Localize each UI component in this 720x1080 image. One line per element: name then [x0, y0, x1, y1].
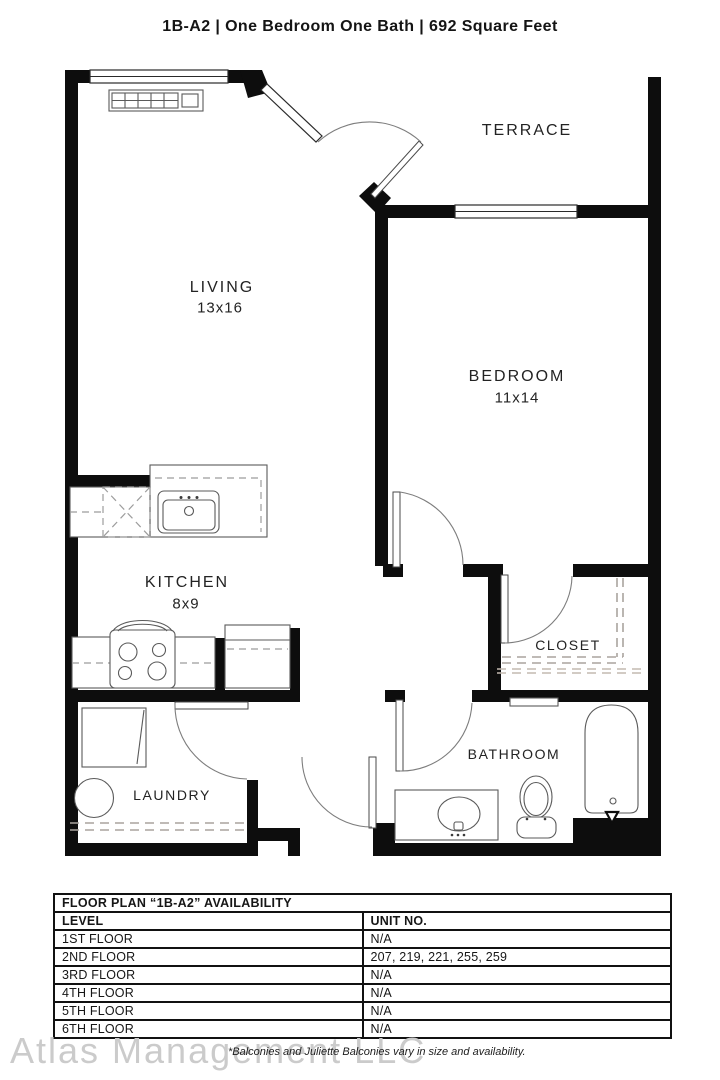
toilet — [517, 776, 556, 838]
bedroom-door-arc — [400, 492, 463, 565]
column-header-unit-no: UNIT NO. — [363, 912, 672, 930]
entry-door-leaf — [371, 141, 423, 198]
units-cell: N/A — [363, 966, 672, 984]
hall-door-leaf — [369, 757, 376, 828]
bathtub — [585, 705, 638, 823]
floorplan-page: 1B-A2 | One Bedroom One Bath | 692 Squar… — [0, 0, 720, 1080]
availability-table-title: FLOOR PLAN “1B-A2” AVAILABILITY — [54, 894, 671, 912]
laundry-door-arc — [175, 703, 247, 779]
laundry-tub — [75, 779, 114, 818]
floor-plan-svg — [0, 0, 720, 890]
kitchen-range — [72, 621, 215, 689]
room-dims-kitchen: 8x9 — [172, 596, 199, 613]
balcony-disclaimer: *Balconies and Juliette Balconies vary i… — [228, 1046, 526, 1058]
bedroom-door-leaf — [393, 492, 400, 567]
room-label-closet: CLOSET — [535, 637, 601, 653]
room-dims-bedroom: 11x14 — [495, 390, 540, 407]
room-dims-living: 13x16 — [197, 300, 243, 317]
laundry-door-leaf — [175, 702, 248, 709]
table-row: 3RD FLOOR N/A — [54, 966, 671, 984]
entry-door-arc — [318, 122, 421, 142]
column-header-level: LEVEL — [54, 912, 363, 930]
vanity — [395, 790, 498, 840]
table-row: 5TH FLOOR N/A — [54, 1002, 671, 1020]
floor-plan: TERRACE LIVING 13x16 BEDROOM 11x14 KITCH… — [0, 0, 720, 890]
closet-door-arc — [505, 576, 572, 643]
table-row: 1ST FLOOR N/A — [54, 930, 671, 948]
units-cell: N/A — [363, 984, 672, 1002]
room-label-bathroom: BATHROOM — [468, 746, 561, 762]
kitchen-sink — [158, 491, 219, 533]
walls-layer — [65, 70, 661, 856]
availability-table-header-row: LEVEL UNIT NO. — [54, 912, 671, 930]
closet-door-leaf — [501, 575, 508, 643]
table-row: 4TH FLOOR N/A — [54, 984, 671, 1002]
table-row: 2ND FLOOR 207, 219, 221, 255, 259 — [54, 948, 671, 966]
level-cell: 1ST FLOOR — [54, 930, 363, 948]
level-cell: 5TH FLOOR — [54, 1002, 363, 1020]
entry-sidelight — [261, 84, 322, 142]
level-cell: 4TH FLOOR — [54, 984, 363, 1002]
laundry-fixtures — [70, 708, 246, 830]
washer — [82, 708, 146, 767]
bathroom-door-leaf — [396, 700, 403, 771]
hvac-unit — [109, 90, 203, 111]
level-cell: 3RD FLOOR — [54, 966, 363, 984]
room-label-laundry: LAUNDRY — [133, 787, 211, 803]
room-label-kitchen: KITCHEN — [145, 574, 229, 592]
bathroom-door-arc — [400, 703, 472, 771]
room-label-bedroom: BEDROOM — [469, 368, 566, 386]
room-label-terrace: TERRACE — [482, 122, 572, 140]
units-cell: N/A — [363, 1002, 672, 1020]
fixtures-layer — [70, 90, 645, 840]
hall-door-arc — [302, 757, 372, 827]
units-cell: N/A — [363, 930, 672, 948]
units-cell: 207, 219, 221, 255, 259 — [363, 948, 672, 966]
availability-table-title-row: FLOOR PLAN “1B-A2” AVAILABILITY — [54, 894, 671, 912]
bath-niche — [510, 698, 558, 706]
closet-shelving — [497, 578, 645, 673]
availability-table: FLOOR PLAN “1B-A2” AVAILABILITY LEVEL UN… — [53, 893, 672, 1039]
kitchen-appliance — [225, 625, 290, 688]
level-cell: 2ND FLOOR — [54, 948, 363, 966]
room-label-living: LIVING — [190, 279, 254, 297]
